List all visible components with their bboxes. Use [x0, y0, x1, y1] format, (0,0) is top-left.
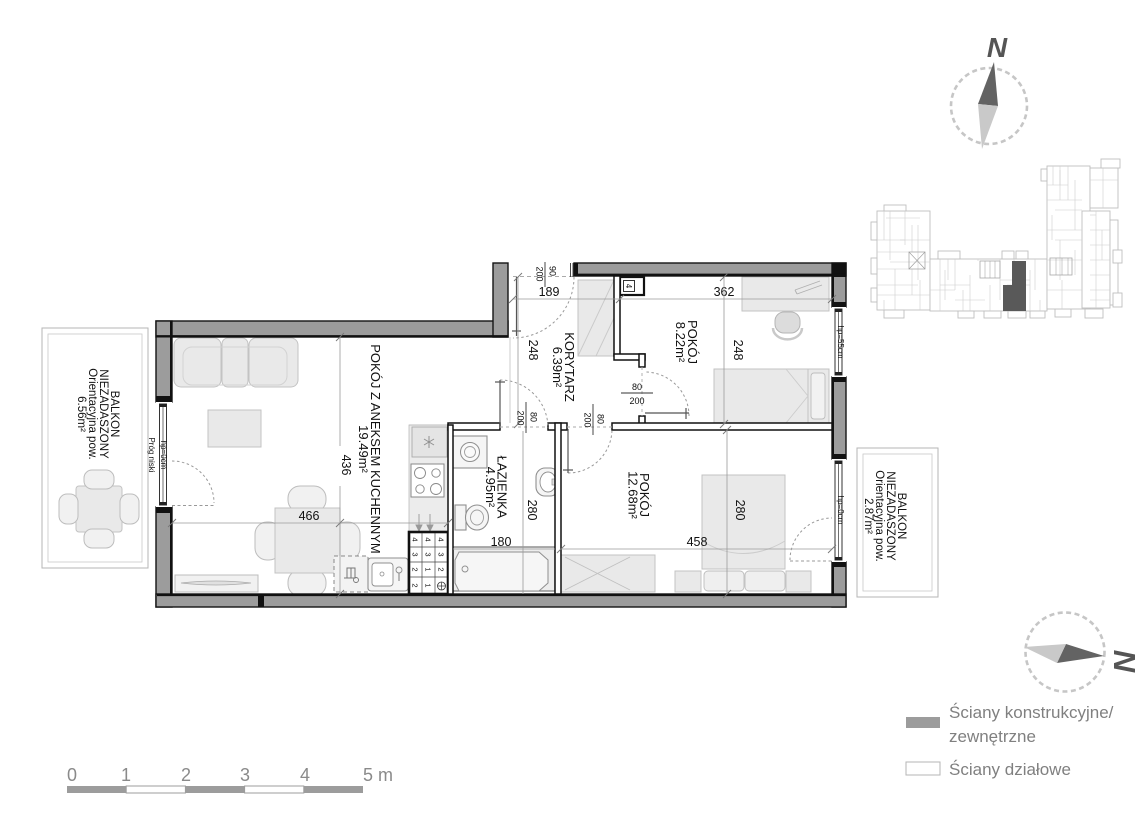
svg-text:4: 4 [624, 284, 633, 289]
svg-text:8.22m²: 8.22m² [673, 322, 688, 363]
svg-text:5 m: 5 m [363, 765, 393, 785]
svg-text:12.68m²: 12.68m² [626, 471, 641, 519]
svg-text:180: 180 [491, 535, 512, 549]
svg-text:80: 80 [596, 414, 606, 424]
svg-text:80: 80 [529, 412, 539, 422]
svg-text:2: 2 [437, 567, 446, 571]
svg-text:3: 3 [240, 765, 250, 785]
svg-text:436: 436 [339, 455, 353, 476]
svg-text:Ściany działowe: Ściany działowe [949, 760, 1071, 779]
svg-text:80: 80 [632, 382, 642, 392]
svg-text:1: 1 [424, 567, 433, 571]
svg-text:4: 4 [424, 537, 433, 541]
svg-text:2.87m²: 2.87m² [862, 498, 874, 534]
svg-text:200: 200 [583, 412, 593, 427]
svg-text:hp=55cm: hp=55cm [836, 325, 845, 358]
svg-text:hp=0cm: hp=0cm [836, 496, 845, 525]
svg-text:200: 200 [535, 266, 545, 281]
svg-text:4.95m²: 4.95m² [483, 467, 498, 508]
svg-text:6.56m²: 6.56m² [75, 396, 87, 432]
svg-text:3: 3 [437, 552, 446, 556]
svg-text:189: 189 [539, 285, 560, 299]
svg-text:4: 4 [437, 537, 446, 541]
svg-text:Ściany konstrukcyjne/: Ściany konstrukcyjne/ [949, 703, 1114, 722]
svg-text:1: 1 [121, 765, 131, 785]
svg-text:3: 3 [411, 552, 420, 556]
svg-text:zewnętrzne: zewnętrzne [949, 727, 1036, 746]
svg-text:2: 2 [411, 583, 420, 587]
svg-text:200: 200 [516, 410, 526, 425]
svg-text:6.39m²: 6.39m² [550, 347, 565, 388]
svg-text:2: 2 [411, 567, 420, 571]
svg-text:1: 1 [424, 583, 433, 587]
svg-text:Próg niski: Próg niski [147, 437, 156, 472]
svg-text:3: 3 [424, 552, 433, 556]
svg-text:90: 90 [548, 266, 558, 276]
svg-text:4: 4 [411, 537, 420, 541]
svg-text:200: 200 [629, 396, 644, 406]
svg-text:2: 2 [181, 765, 191, 785]
svg-text:280: 280 [525, 500, 539, 521]
svg-text:N: N [1107, 650, 1142, 673]
svg-text:hp=0cm: hp=0cm [159, 441, 168, 470]
svg-text:248: 248 [731, 340, 745, 361]
svg-text:280: 280 [733, 500, 747, 521]
svg-text:0: 0 [67, 765, 77, 785]
svg-text:458: 458 [687, 535, 708, 549]
svg-text:248: 248 [526, 340, 540, 361]
svg-text:19.49m²: 19.49m² [356, 425, 371, 473]
svg-text:466: 466 [299, 509, 320, 523]
svg-text:N: N [987, 32, 1008, 63]
svg-text:4: 4 [300, 765, 310, 785]
